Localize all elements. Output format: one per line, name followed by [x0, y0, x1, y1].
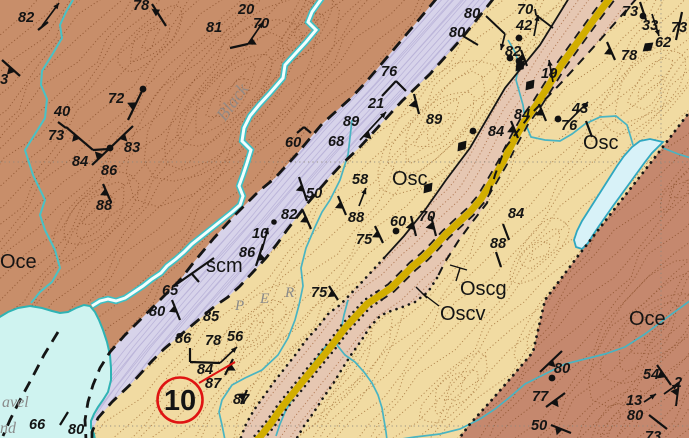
svg-text:nd: nd: [0, 420, 17, 437]
svg-text:21: 21: [367, 96, 384, 112]
svg-text:78: 78: [621, 48, 638, 64]
svg-text:84: 84: [72, 154, 88, 170]
svg-text:10: 10: [164, 385, 196, 417]
svg-text:73: 73: [48, 128, 64, 144]
svg-text:56: 56: [227, 329, 244, 345]
svg-text:R: R: [284, 285, 294, 301]
svg-text:86: 86: [101, 163, 118, 179]
svg-text:89: 89: [343, 114, 359, 130]
svg-text:80: 80: [464, 6, 480, 22]
svg-text:81: 81: [206, 20, 222, 36]
svg-text:75: 75: [311, 285, 328, 301]
svg-text:84: 84: [514, 107, 530, 123]
svg-text:P: P: [234, 298, 244, 314]
svg-text:Oscv: Oscv: [440, 303, 486, 325]
svg-text:82: 82: [281, 207, 297, 223]
svg-text:60: 60: [390, 214, 406, 230]
svg-text:Oce: Oce: [629, 308, 666, 330]
svg-text:73: 73: [622, 4, 638, 20]
svg-text:86: 86: [175, 331, 192, 347]
svg-text:80: 80: [68, 422, 84, 438]
svg-text:E: E: [259, 291, 269, 307]
svg-text:88: 88: [490, 236, 507, 252]
svg-text:50: 50: [306, 186, 322, 202]
svg-text:83: 83: [124, 140, 140, 156]
svg-text:70: 70: [517, 2, 533, 18]
svg-text:84: 84: [508, 206, 524, 222]
svg-text:40: 40: [53, 104, 70, 120]
svg-text:80: 80: [149, 304, 165, 320]
svg-text:77: 77: [532, 389, 549, 405]
svg-text:66: 66: [29, 417, 46, 433]
svg-text:13: 13: [626, 393, 642, 409]
svg-text:76: 76: [381, 64, 398, 80]
svg-text:78: 78: [205, 333, 222, 349]
svg-text:76: 76: [561, 118, 578, 134]
svg-text:Osc: Osc: [583, 132, 619, 154]
svg-text:54: 54: [643, 367, 659, 383]
svg-text:58: 58: [352, 172, 369, 188]
svg-text:Oce: Oce: [0, 251, 37, 273]
svg-text:avel: avel: [2, 394, 29, 411]
svg-text:82: 82: [18, 10, 34, 26]
svg-text:50: 50: [531, 418, 547, 434]
svg-text:75: 75: [356, 232, 373, 248]
svg-text:68: 68: [328, 134, 345, 150]
svg-text:78: 78: [133, 0, 150, 14]
svg-text:80: 80: [449, 25, 465, 41]
svg-text:20: 20: [237, 2, 254, 18]
svg-text:Osc: Osc: [392, 168, 428, 190]
svg-text:62: 62: [655, 35, 671, 51]
svg-text:84: 84: [488, 124, 504, 140]
svg-text:85: 85: [203, 309, 220, 325]
svg-text:scm: scm: [206, 255, 243, 277]
svg-text:19: 19: [541, 66, 557, 82]
svg-text:60: 60: [285, 135, 301, 151]
svg-text:89: 89: [426, 112, 442, 128]
svg-text:83: 83: [0, 72, 8, 88]
svg-text:72: 72: [108, 91, 124, 107]
svg-text:73: 73: [645, 429, 661, 438]
svg-text:Oscg: Oscg: [460, 278, 507, 300]
svg-text:80: 80: [627, 408, 643, 424]
svg-text:88: 88: [348, 210, 365, 226]
svg-text:42: 42: [515, 18, 532, 34]
svg-text:80: 80: [554, 361, 570, 377]
